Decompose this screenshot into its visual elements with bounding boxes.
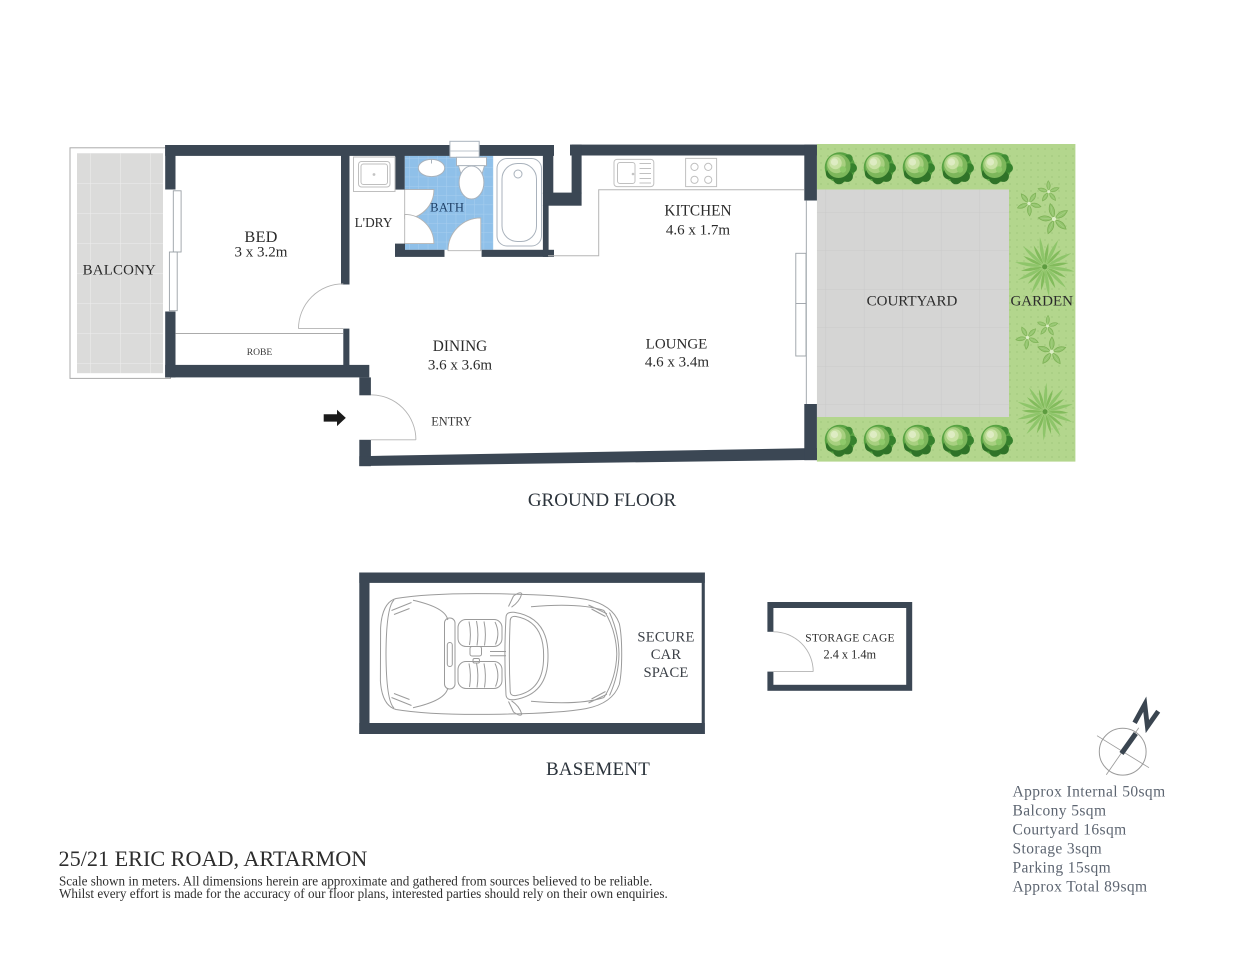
svg-text:BALCONY: BALCONY (83, 263, 156, 279)
svg-text:DINING: DINING (433, 338, 487, 355)
svg-text:Balcony 5sqm: Balcony 5sqm (1013, 803, 1107, 820)
svg-text:LOUNGE: LOUNGE (646, 337, 708, 353)
svg-text:L'DRY: L'DRY (355, 215, 393, 230)
svg-text:Approx Internal 50sqm: Approx Internal 50sqm (1013, 784, 1166, 801)
svg-text:BATH: BATH (430, 201, 464, 215)
svg-text:SPACE: SPACE (643, 665, 688, 681)
svg-text:25/21 ERIC ROAD, ARTARMON: 25/21 ERIC ROAD, ARTARMON (59, 846, 368, 871)
svg-text:3 x 3.2m: 3 x 3.2m (235, 245, 288, 261)
svg-text:SECURE: SECURE (637, 630, 694, 646)
svg-text:Storage 3sqm: Storage 3sqm (1013, 841, 1103, 858)
svg-text:Approx Total 89sqm: Approx Total 89sqm (1013, 879, 1148, 896)
svg-text:2.4 x 1.4m: 2.4 x 1.4m (823, 648, 876, 662)
svg-text:STORAGE CAGE: STORAGE CAGE (805, 633, 894, 645)
svg-text:ENTRY: ENTRY (431, 415, 472, 429)
svg-text:ROBE: ROBE (247, 347, 273, 358)
svg-text:Courtyard 16sqm: Courtyard 16sqm (1013, 822, 1127, 839)
svg-text:Parking 15sqm: Parking 15sqm (1013, 860, 1112, 877)
svg-text:BASEMENT: BASEMENT (546, 759, 650, 780)
svg-text:GROUND FLOOR: GROUND FLOOR (528, 490, 677, 511)
svg-text:COURTYARD: COURTYARD (867, 294, 958, 310)
svg-text:3.6 x 3.6m: 3.6 x 3.6m (428, 358, 493, 374)
svg-text:4.6 x 1.7m: 4.6 x 1.7m (666, 223, 731, 239)
svg-text:4.6 x 3.4m: 4.6 x 3.4m (645, 355, 710, 371)
svg-text:CAR: CAR (651, 647, 682, 663)
svg-text:KITCHEN: KITCHEN (664, 203, 731, 220)
svg-text:Whilst every effort is made fo: Whilst every effort is made for the accu… (59, 886, 668, 901)
svg-text:BED: BED (244, 227, 277, 246)
svg-text:GARDEN: GARDEN (1010, 294, 1073, 310)
